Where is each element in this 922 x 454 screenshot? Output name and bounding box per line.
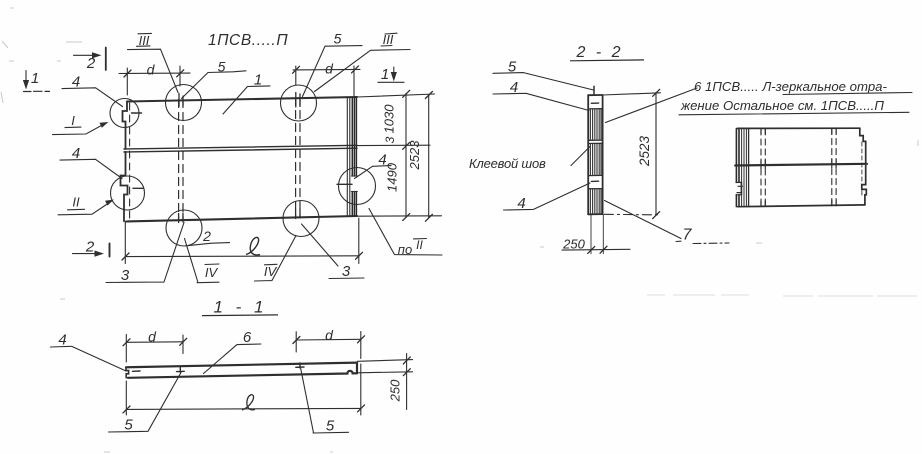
svg-text:d: d <box>325 61 334 77</box>
svg-text:2523: 2523 <box>407 140 422 171</box>
svg-text:4: 4 <box>510 79 518 96</box>
svg-text:3: 3 <box>121 267 130 284</box>
svg-text:d: d <box>148 329 157 345</box>
svg-text:5: 5 <box>124 417 133 434</box>
svg-text:IV: IV <box>205 265 219 280</box>
svg-text:по: по <box>398 242 412 257</box>
svg-text:1490: 1490 <box>385 162 400 192</box>
svg-text:5: 5 <box>508 59 517 76</box>
svg-text:1: 1 <box>254 72 262 89</box>
svg-text:2: 2 <box>86 55 96 72</box>
svg-text:Клеевой шов: Клеевой шов <box>469 156 546 171</box>
svg-text:II: II <box>416 238 423 252</box>
svg-text:5: 5 <box>326 418 335 435</box>
svg-text:IV: IV <box>264 264 278 279</box>
svg-text:4: 4 <box>72 145 80 162</box>
svg-text:1 - 1: 1 - 1 <box>213 298 267 317</box>
svg-text:4: 4 <box>517 195 525 212</box>
svg-text:III: III <box>139 33 150 48</box>
svg-text:2: 2 <box>85 239 95 256</box>
svg-text:I: I <box>71 113 75 128</box>
svg-text:1030: 1030 <box>382 104 397 134</box>
svg-text:7: 7 <box>683 227 693 244</box>
svg-text:250: 250 <box>388 379 403 402</box>
svg-text:6 1ПСВ..... Л-зеркальное отра: 6 1ПСВ..... Л-зеркальное отра- <box>694 79 887 94</box>
svg-text:d: d <box>147 62 156 78</box>
svg-text:1: 1 <box>31 70 39 87</box>
svg-text:2 - 2: 2 - 2 <box>575 44 623 61</box>
svg-text:1ПСВ.....П: 1ПСВ.....П <box>208 32 288 49</box>
svg-text:3: 3 <box>383 136 397 143</box>
svg-text:1: 1 <box>381 66 389 83</box>
svg-text:2523: 2523 <box>637 135 652 167</box>
svg-text:4: 4 <box>58 332 66 349</box>
svg-text:d: d <box>325 327 334 343</box>
svg-text:2: 2 <box>202 228 211 244</box>
svg-text:5: 5 <box>218 59 226 75</box>
svg-text:III: III <box>383 32 394 47</box>
svg-text:4: 4 <box>72 74 80 91</box>
svg-text:3: 3 <box>342 263 351 280</box>
svg-text:6: 6 <box>243 329 252 346</box>
svg-text:250: 250 <box>562 237 585 252</box>
svg-text:жение Остальное см. 1ПСВ.....П: жение Остальное см. 1ПСВ.....П <box>680 98 884 113</box>
svg-text:II: II <box>72 195 80 210</box>
svg-text:5: 5 <box>334 31 342 47</box>
